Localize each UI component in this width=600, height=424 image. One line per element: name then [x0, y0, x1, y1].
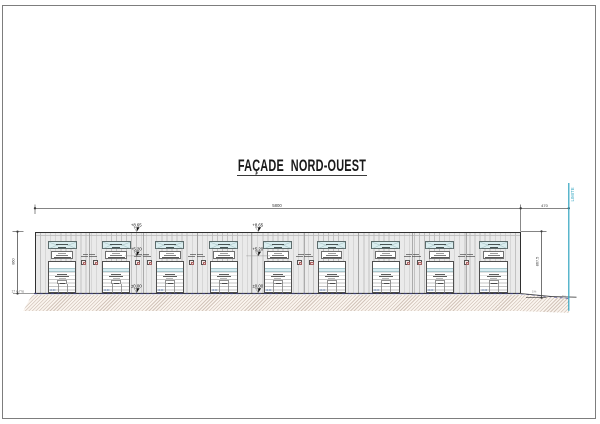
- svg-text:±0.00: ±0.00: [131, 283, 142, 288]
- svg-text:+8.65: +8.65: [131, 222, 142, 227]
- svg-text:LIMITE: LIMITE: [570, 187, 575, 201]
- svg-text:5800: 5800: [272, 203, 282, 208]
- svg-text:±0.00: ±0.00: [252, 283, 263, 288]
- svg-text:1%: 1%: [532, 289, 537, 293]
- svg-text:17 +-7 te: 17 +-7 te: [12, 289, 25, 293]
- svg-text:+8.65: +8.65: [252, 222, 263, 227]
- svg-text:860: 860: [12, 258, 16, 264]
- svg-text:+5.20: +5.20: [131, 247, 142, 252]
- svg-text:867.5: 867.5: [535, 257, 539, 267]
- svg-text:+5.20: +5.20: [252, 247, 263, 252]
- svg-text:TN: TN: [562, 294, 566, 298]
- svg-text:470: 470: [541, 203, 548, 208]
